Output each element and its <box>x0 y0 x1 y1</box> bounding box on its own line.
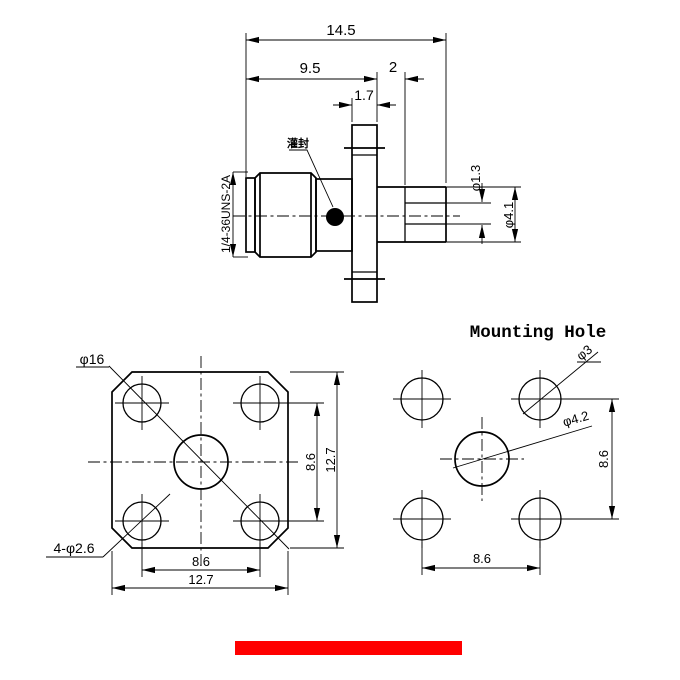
potting-label: 灌封 <box>287 136 309 150</box>
flange-side-profile <box>352 125 377 302</box>
potting-dot <box>326 208 344 226</box>
dim-body-diameter: φ4.1 <box>501 202 516 229</box>
mounting-hole-view: Mounting Hole <box>393 323 619 575</box>
dim-flange-diagonal: φ16 <box>80 351 105 367</box>
dim-hole-pitch-horizontal: 8.6 <box>192 554 210 569</box>
dim-length-to-flange: 9.5 <box>300 60 321 77</box>
dim-center-hole-diameter: φ4.2 <box>561 408 591 430</box>
mounting-hole-title: Mounting Hole <box>470 323 607 343</box>
technical-drawing-page: 14.5 9.5 2 1.7 φ1.3 φ4.1 1/4-36UNS-2A 灌封 <box>0 0 680 680</box>
mounting-dimension-lines <box>422 352 619 575</box>
flange-front-view: φ16 4-φ2.6 8.6 12.7 8.6 12.7 <box>46 351 344 595</box>
dim-pin-diameter: φ1.3 <box>468 165 483 192</box>
dim-corner-holes: 4-φ2.6 <box>54 540 95 556</box>
red-accent-bar <box>235 641 462 655</box>
mounting-corner-holes <box>393 370 569 548</box>
side-view: 14.5 9.5 2 1.7 φ1.3 φ4.1 1/4-36UNS-2A 灌封 <box>219 22 521 302</box>
dim-mounting-pitch-vertical: 8.6 <box>596 450 611 468</box>
dim-flange-width: 12.7 <box>188 572 213 587</box>
thread-spec-label: 1/4-36UNS-2A <box>219 175 233 253</box>
dim-overall-length: 14.5 <box>326 22 355 39</box>
connector-body-outline <box>246 125 446 302</box>
dim-shoulder-length: 2 <box>389 59 397 76</box>
dim-mounting-pitch-horizontal: 8.6 <box>473 551 491 566</box>
dim-flange-thickness: 1.7 <box>354 87 374 103</box>
dim-flange-height: 12.7 <box>323 447 338 472</box>
dim-mounting-hole-diameter: φ3 <box>573 342 595 363</box>
dim-hole-pitch-vertical: 8.6 <box>303 453 318 471</box>
sma-connector-drawing: 14.5 9.5 2 1.7 φ1.3 φ4.1 1/4-36UNS-2A 灌封 <box>0 0 680 680</box>
